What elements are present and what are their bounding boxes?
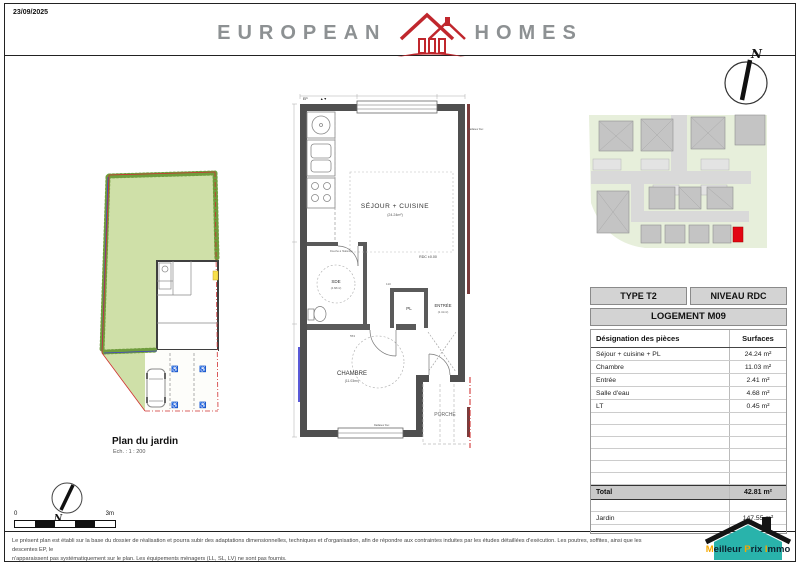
dimension-553: 553 <box>350 334 355 338</box>
living-room-label: SÉJOUR + CUISINE <box>361 201 429 210</box>
shower-room-area: (4.68m²) <box>331 286 342 290</box>
radiator-label-top: Radiateur Dec <box>468 128 484 131</box>
brand-logo: EUROPEAN HOMES <box>0 7 800 59</box>
table-row: Entrée2.41 m² <box>591 374 786 387</box>
north-compass-icon: N <box>713 45 779 111</box>
svg-text:♿: ♿ <box>171 365 179 373</box>
unit-cell: LOGEMENT M09 <box>590 308 787 326</box>
dimension-110: 110 <box>386 282 391 286</box>
level-cell: NIVEAU RDC <box>690 287 787 305</box>
level-label: RDC ±0.00 <box>419 255 437 259</box>
table-row: LT0.45 m² <box>591 400 786 413</box>
surfaces-table: TYPE T2 NIVEAU RDC LOGEMENT M09 Désignat… <box>590 287 787 534</box>
empty-row <box>591 500 786 512</box>
garden-plan-title: Plan du jardin <box>112 436 178 447</box>
empty-row <box>591 425 786 437</box>
radiator-label-bottom: Radiateur Dec <box>374 424 390 427</box>
ep-label: EP <box>303 97 308 101</box>
disclaimer-line1: Le présent plan est établi sur la base d… <box>12 537 648 555</box>
garden-plan: ♿♿♿♿ <box>95 163 227 435</box>
porch-label: PORCHE <box>434 412 456 418</box>
scale-start: 0 <box>14 511 17 517</box>
entry-area: (2.41m²) <box>438 310 449 314</box>
total-row: Total42.81 m² <box>591 485 786 500</box>
site-plan <box>583 103 773 253</box>
north-markers: ▲▼ <box>320 97 327 101</box>
svg-text:♿: ♿ <box>199 401 207 409</box>
empty-row <box>591 413 786 425</box>
shower-room-label: SDE <box>331 279 340 284</box>
empty-row <box>591 437 786 449</box>
brand-name-left: EUROPEAN <box>217 22 386 45</box>
floor-plan: EP ▲▼ SÉJOUR + CUISINE (24.24m²) RDC ±0.… <box>290 92 485 452</box>
garden-house-footprint <box>157 261 218 350</box>
table-row: Séjour + cuisine + PL24.24 m² <box>591 348 786 361</box>
disclaimer-line2: n'apparaissent pas systématiquement sur … <box>12 555 648 564</box>
parking-car-icon <box>146 369 166 407</box>
living-room-area: (24.24m²) <box>387 213 403 217</box>
legal-disclaimer: Le présent plan est établi sur la base d… <box>12 537 648 564</box>
table-header-row: Désignation des pièces Surfaces <box>591 330 786 348</box>
col-surfaces: Surfaces <box>729 330 786 347</box>
bedroom-area: (11.03m²) <box>345 379 359 383</box>
mpi-logo-text: Meilleur Prix Immo <box>706 544 791 555</box>
closet-label: PL <box>406 306 412 311</box>
empty-row <box>591 461 786 473</box>
party-wall-marker <box>467 104 470 294</box>
svg-text:♿: ♿ <box>171 401 179 409</box>
garden-plan-scale: Ech. : 1 : 200 <box>113 449 145 455</box>
svg-text:♿: ♿ <box>199 365 207 373</box>
meilleur-prix-immo-logo: Meilleur Prix Immo <box>702 514 794 564</box>
table-row: Chambre11.03 m² <box>591 361 786 374</box>
compass-north-label: N <box>750 47 763 61</box>
bathroom-fixtures <box>308 265 355 322</box>
col-rooms: Désignation des pièces <box>591 330 729 347</box>
empty-row <box>591 473 786 485</box>
table-row: Salle d'eau4.68 m² <box>591 387 786 400</box>
shower-note: Douche à l'italienne <box>330 249 353 253</box>
small-compass-icon: N <box>38 477 96 525</box>
brand-name-right: HOMES <box>475 22 583 45</box>
entry-label: ENTRÉE <box>435 303 452 308</box>
bedroom-label: CHAMBRE <box>337 371 367 377</box>
highlighted-unit-marker <box>733 227 743 242</box>
scale-bar <box>14 520 116 528</box>
empty-row <box>591 449 786 461</box>
european-homes-house-icon <box>395 7 467 59</box>
type-cell: TYPE T2 <box>590 287 687 305</box>
scale-end: 3m <box>106 511 114 517</box>
kitchen-fixtures <box>307 112 335 208</box>
